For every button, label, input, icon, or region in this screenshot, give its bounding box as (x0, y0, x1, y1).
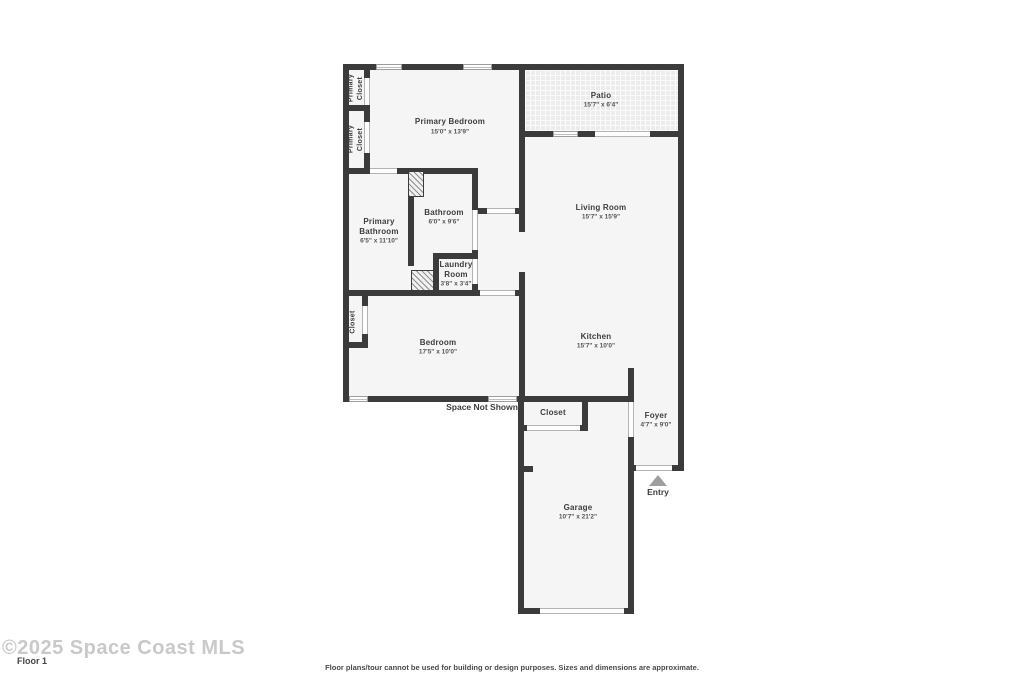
entry-arrow-icon (649, 475, 667, 486)
room-label-primary-closet-2: Primary Closet (347, 125, 366, 153)
door-opening (595, 131, 650, 137)
wall-segment (519, 64, 525, 232)
window-opening (553, 131, 578, 137)
entry-label: Entry (647, 487, 669, 497)
wall-segment (524, 466, 533, 472)
wall-segment (343, 64, 349, 402)
room-dims-laundry-room: 3'8" x 3'4" (441, 281, 472, 288)
door-opening (370, 168, 397, 174)
room-label-kitchen: Kitchen (581, 332, 612, 342)
room-dims-patio: 15'7" x 6'4" (584, 102, 619, 109)
door-opening (362, 306, 368, 334)
door-opening (472, 259, 478, 284)
room-label-primary-bedroom: Primary Bedroom (415, 117, 485, 127)
room-label-entry-closet: Closet (540, 408, 566, 418)
wall-segment (518, 402, 524, 608)
room-dims-foyer: 4'7" x 9'0" (641, 422, 672, 429)
room-label-bedroom: Bedroom (420, 338, 457, 348)
hatched-area (411, 270, 434, 291)
room-dims-kitchen: 15'7" x 10'0" (577, 343, 615, 350)
floorplan-page: Primary Closet Primary Closet Primary Be… (0, 0, 1024, 683)
wall-segment (628, 471, 634, 608)
disclaimer-text: Floor plans/tour cannot be used for buil… (0, 663, 1024, 672)
door-opening (636, 465, 672, 471)
floor-area (634, 396, 678, 465)
door-opening (628, 402, 634, 437)
room-dims-garage: 10'7" x 21'2" (559, 514, 597, 521)
room-label-bedroom-closet: Closet (348, 310, 357, 333)
room-label-patio: Patio (591, 91, 612, 101)
wall-segment (678, 64, 684, 471)
room-label-foyer: Foyer (645, 411, 668, 421)
window-opening (376, 64, 402, 70)
door-opening (540, 608, 624, 614)
room-dims-primary-bathroom: 6'5" x 11'10" (360, 238, 398, 245)
room-dims-primary-bedroom: 15'0" x 13'9" (431, 129, 469, 136)
room-label-bathroom: Bathroom (424, 208, 463, 218)
door-opening (480, 290, 515, 296)
room-dims-bedroom: 17'5" x 10'0" (419, 349, 457, 356)
door-opening (472, 210, 478, 250)
room-dims-bathroom: 6'0" x 9'6" (429, 219, 460, 226)
window-opening (463, 64, 492, 70)
room-label-primary-bathroom: Primary Bathroom (359, 217, 398, 237)
room-label-living-room: Living Room (576, 203, 627, 213)
floor-plan: Primary Closet Primary Closet Primary Be… (0, 0, 1024, 683)
wall-segment (519, 272, 525, 402)
hatched-area (408, 171, 424, 197)
door-opening (527, 425, 580, 431)
space-not-shown-label: Space Not Shown (446, 402, 518, 412)
room-label-laundry-room: Laundry Room (440, 260, 473, 280)
room-dims-living-room: 15'7" x 15'9" (582, 214, 620, 221)
door-opening (487, 208, 515, 214)
room-label-garage: Garage (564, 503, 593, 513)
wall-segment (343, 342, 368, 348)
window-opening (349, 396, 368, 402)
wall-segment (672, 465, 678, 471)
room-label-primary-closet-1: Primary Closet (347, 74, 366, 102)
